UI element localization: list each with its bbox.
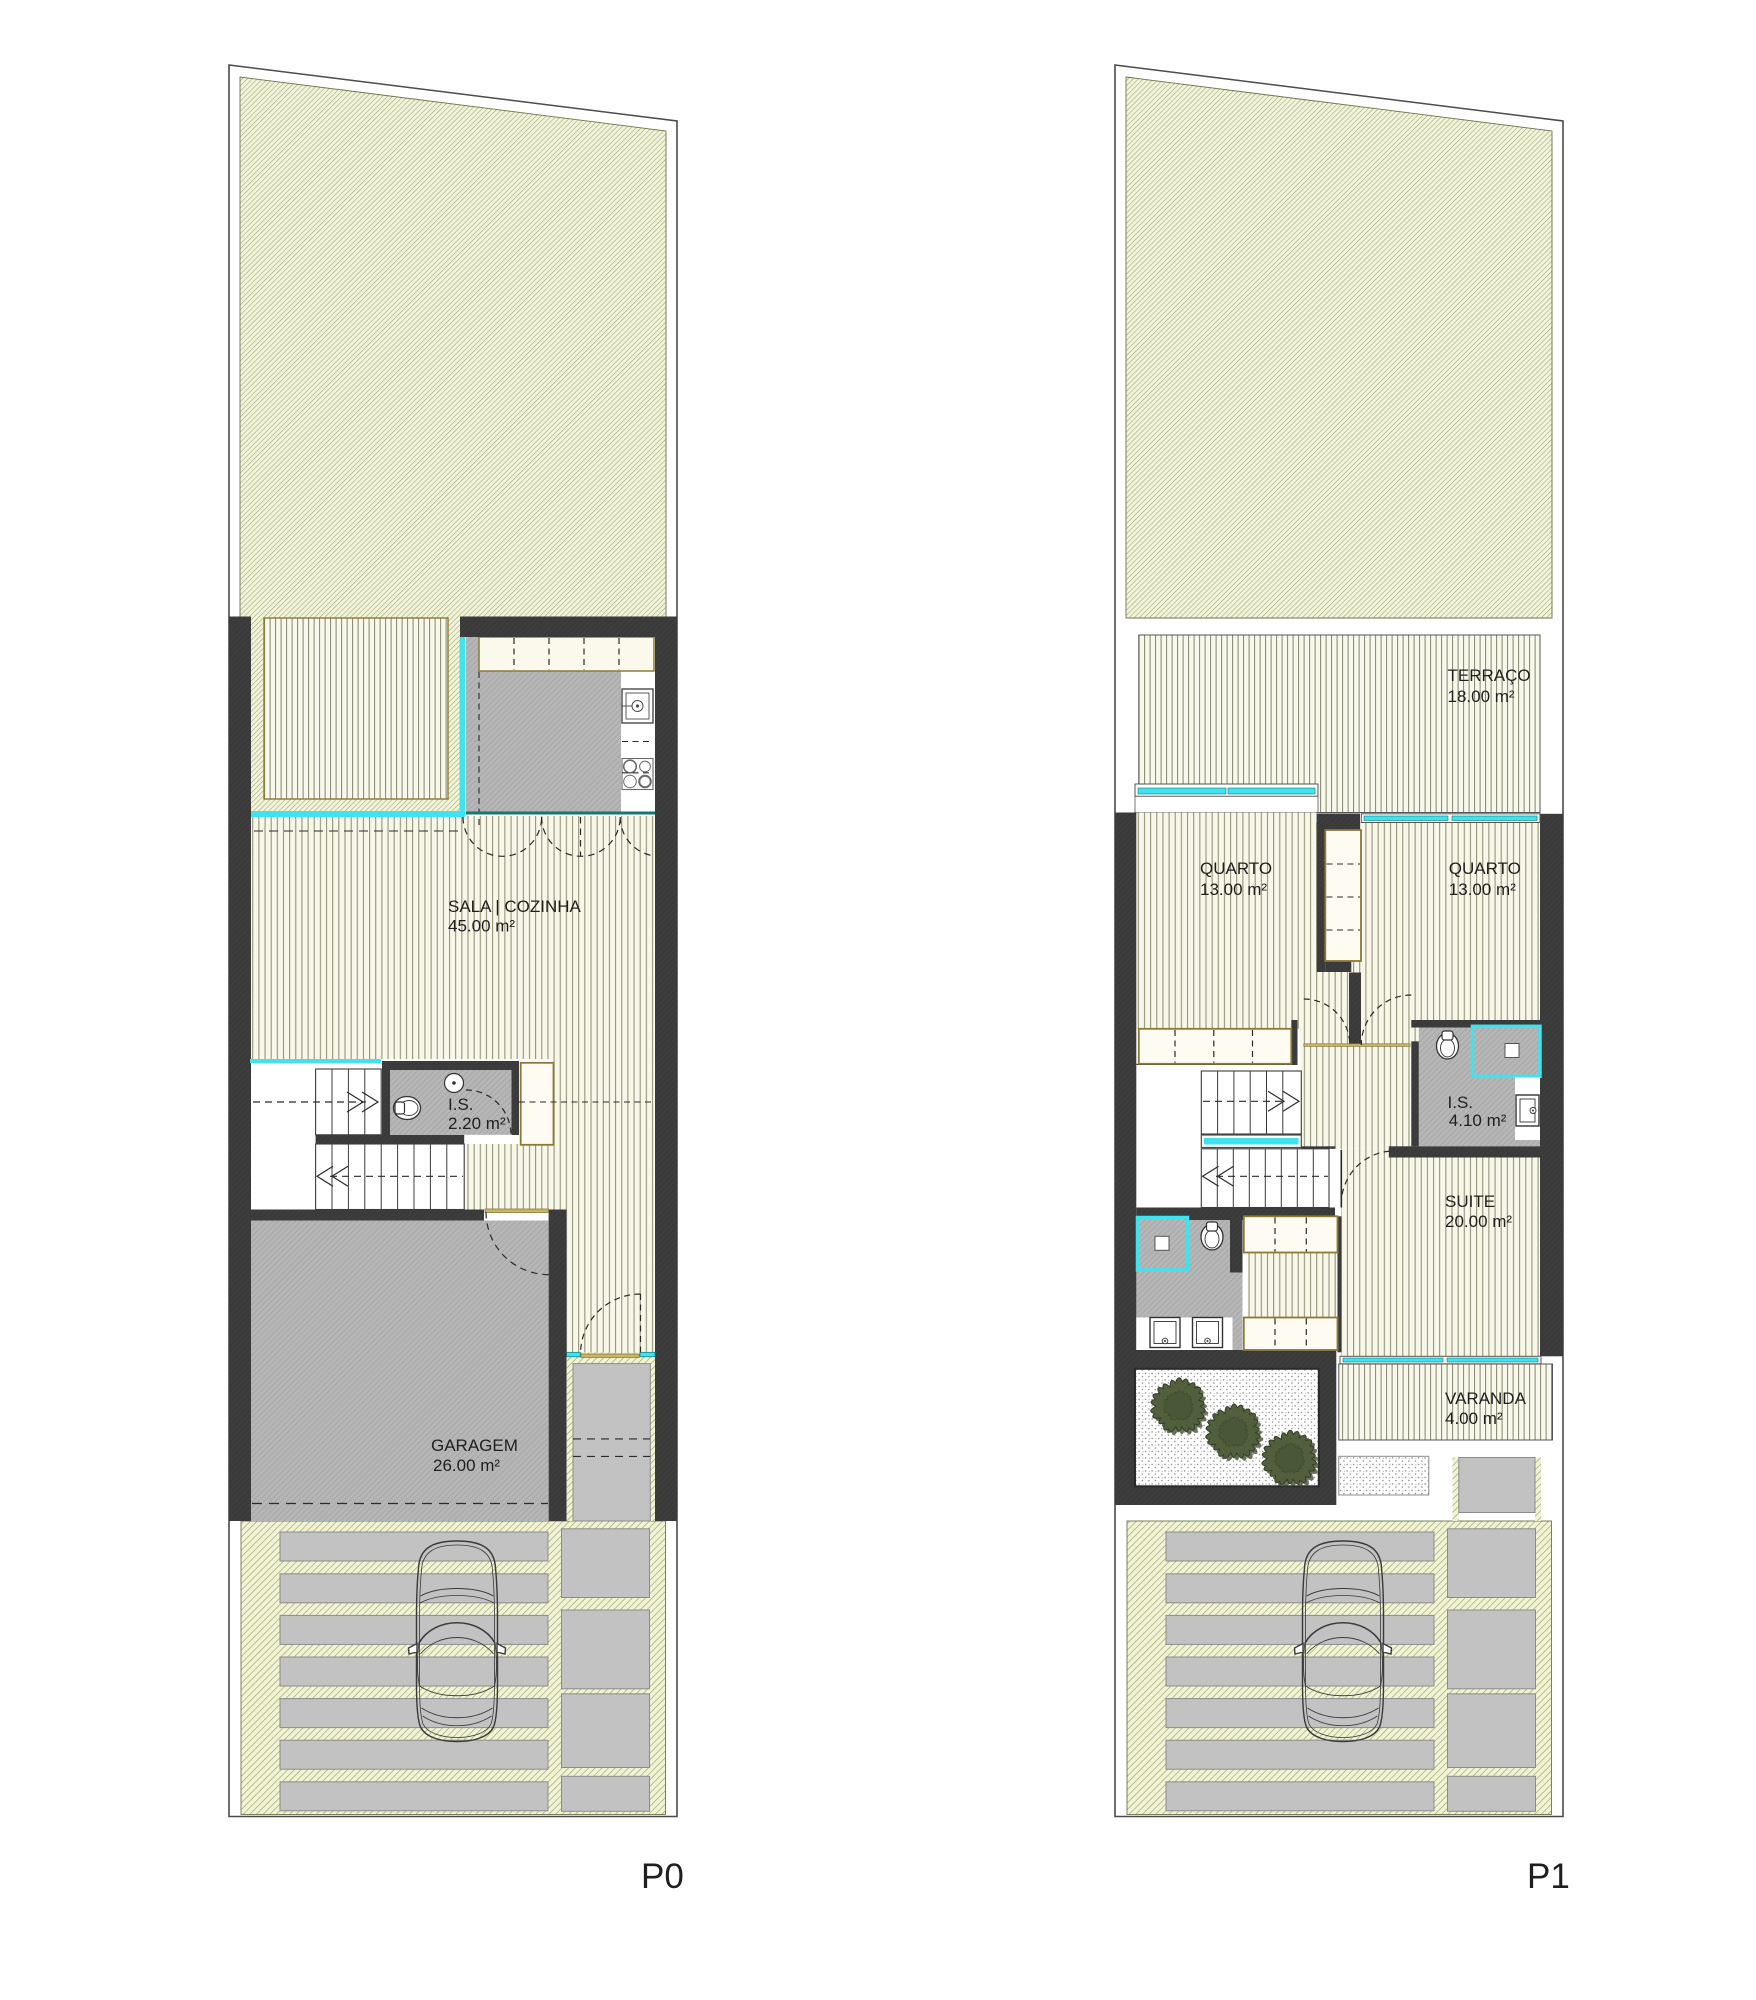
svg-text:TERRAÇO: TERRAÇO xyxy=(1448,666,1531,685)
svg-text:13.00 m²: 13.00 m² xyxy=(1200,880,1267,899)
svg-text:VARANDA: VARANDA xyxy=(1445,1389,1527,1408)
svg-text:SUITE: SUITE xyxy=(1445,1192,1495,1211)
svg-text:GARAGEM: GARAGEM xyxy=(431,1436,518,1455)
svg-text:4.10 m²: 4.10 m² xyxy=(1449,1111,1507,1130)
svg-text:I.S.: I.S. xyxy=(448,1095,474,1114)
svg-text:2.20 m²: 2.20 m² xyxy=(448,1114,506,1133)
svg-text:20.00 m²: 20.00 m² xyxy=(1445,1212,1512,1231)
svg-text:18.00 m²: 18.00 m² xyxy=(1448,687,1515,706)
svg-text:13.00 m²: 13.00 m² xyxy=(1449,880,1516,899)
svg-text:P0: P0 xyxy=(641,1857,684,1896)
svg-text:SALA | COZINHA: SALA | COZINHA xyxy=(448,897,582,916)
svg-text:45.00 m²: 45.00 m² xyxy=(448,917,515,936)
svg-text:4.00 m²: 4.00 m² xyxy=(1445,1409,1503,1428)
svg-text:P1: P1 xyxy=(1527,1857,1570,1896)
svg-text:26.00 m²: 26.00 m² xyxy=(433,1456,500,1475)
svg-text:QUARTO: QUARTO xyxy=(1200,859,1272,878)
svg-text:I.S.: I.S. xyxy=(1448,1093,1474,1112)
svg-text:QUARTO: QUARTO xyxy=(1449,859,1521,878)
